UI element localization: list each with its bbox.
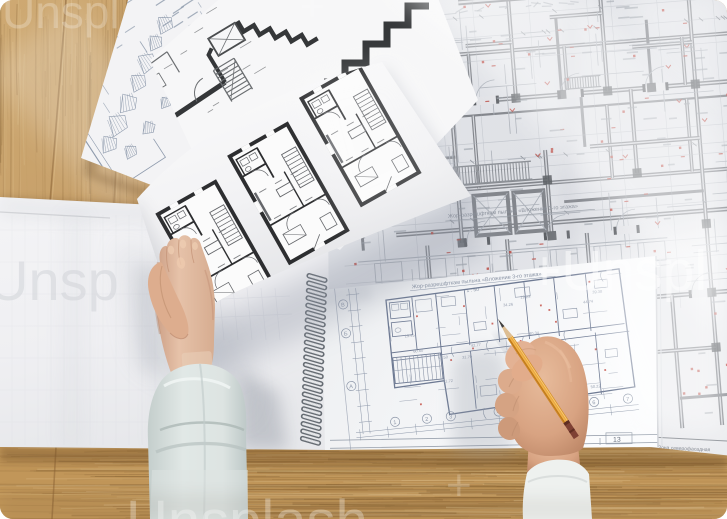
svg-text:6: 6 (592, 400, 596, 406)
svg-text:+: + (446, 461, 472, 510)
svg-text:Unsp: Unsp (0, 249, 119, 312)
svg-text:1: 1 (393, 420, 397, 426)
svg-text:40.34: 40.34 (529, 330, 540, 336)
svg-text:51.50: 51.50 (438, 354, 449, 360)
svg-text:Unspl: Unspl (2, 0, 120, 38)
svg-text:2: 2 (425, 417, 429, 423)
svg-text:34.26: 34.26 (503, 301, 514, 307)
svg-text:60.60: 60.60 (413, 348, 424, 354)
svg-text:Unsplash: Unsplash (126, 489, 368, 519)
svg-text:3: 3 (449, 414, 453, 420)
svg-text:15.45: 15.45 (404, 332, 415, 338)
svg-text:13: 13 (613, 437, 621, 444)
svg-text:+Unspl: +Unspl (528, 239, 707, 303)
svg-text:+: + (300, 0, 325, 29)
svg-text:42.77: 42.77 (471, 342, 482, 348)
svg-text:50.22: 50.22 (590, 383, 601, 389)
